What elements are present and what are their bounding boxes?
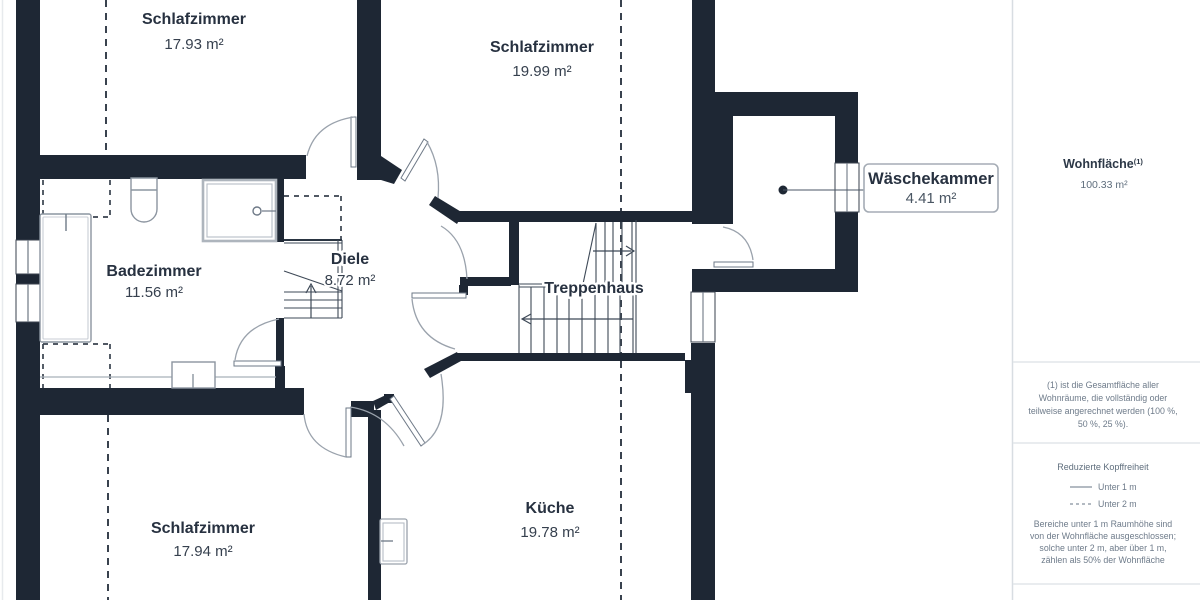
svg-text:solche unter 2 m, aber über 1: solche unter 2 m, aber über 1 m, <box>1039 543 1166 553</box>
svg-text:Badezimmer: Badezimmer <box>106 263 201 280</box>
svg-text:von der Wohnfläche ausgeschlos: von der Wohnfläche ausgeschlossen; <box>1030 531 1176 541</box>
svg-text:Küche: Küche <box>526 500 575 517</box>
svg-text:(1) ist die Gesamtfläche aller: (1) ist die Gesamtfläche aller <box>1047 380 1159 390</box>
svg-text:Wohnfläche(1): Wohnfläche(1) <box>1063 157 1143 171</box>
svg-text:Schlafzimmer: Schlafzimmer <box>490 39 594 56</box>
svg-text:19.78 m²: 19.78 m² <box>520 524 579 541</box>
svg-text:19.99 m²: 19.99 m² <box>512 63 571 80</box>
svg-text:100.33 m²: 100.33 m² <box>1080 179 1128 191</box>
svg-text:Treppenhaus: Treppenhaus <box>544 280 644 297</box>
svg-text:Wohnräume, die vollständig ode: Wohnräume, die vollständig oder <box>1039 393 1168 403</box>
svg-text:Schlafzimmer: Schlafzimmer <box>142 11 246 28</box>
svg-text:zählen als 50% der Wohnfläche: zählen als 50% der Wohnfläche <box>1041 555 1165 565</box>
svg-text:teilweise angerechnet werden (: teilweise angerechnet werden (100 %, <box>1028 406 1177 416</box>
svg-text:4.41 m²: 4.41 m² <box>906 190 957 207</box>
svg-text:Wäschekammer: Wäschekammer <box>868 170 994 188</box>
svg-text:8.72 m²: 8.72 m² <box>325 272 376 289</box>
svg-text:Diele: Diele <box>331 251 369 268</box>
svg-text:17.94 m²: 17.94 m² <box>173 543 232 560</box>
svg-text:Bereiche unter 1 m Raumhöhe si: Bereiche unter 1 m Raumhöhe sind <box>1034 519 1172 529</box>
svg-text:Unter 2 m: Unter 2 m <box>1098 499 1137 509</box>
svg-text:11.56 m²: 11.56 m² <box>125 284 183 301</box>
svg-text:17.93 m²: 17.93 m² <box>164 36 223 53</box>
svg-text:50 %, 25 %).: 50 %, 25 %). <box>1078 419 1128 429</box>
svg-text:Reduzierte Kopffreiheit: Reduzierte Kopffreiheit <box>1057 462 1149 472</box>
svg-text:Schlafzimmer: Schlafzimmer <box>151 520 255 537</box>
svg-text:Unter 1 m: Unter 1 m <box>1098 482 1137 492</box>
